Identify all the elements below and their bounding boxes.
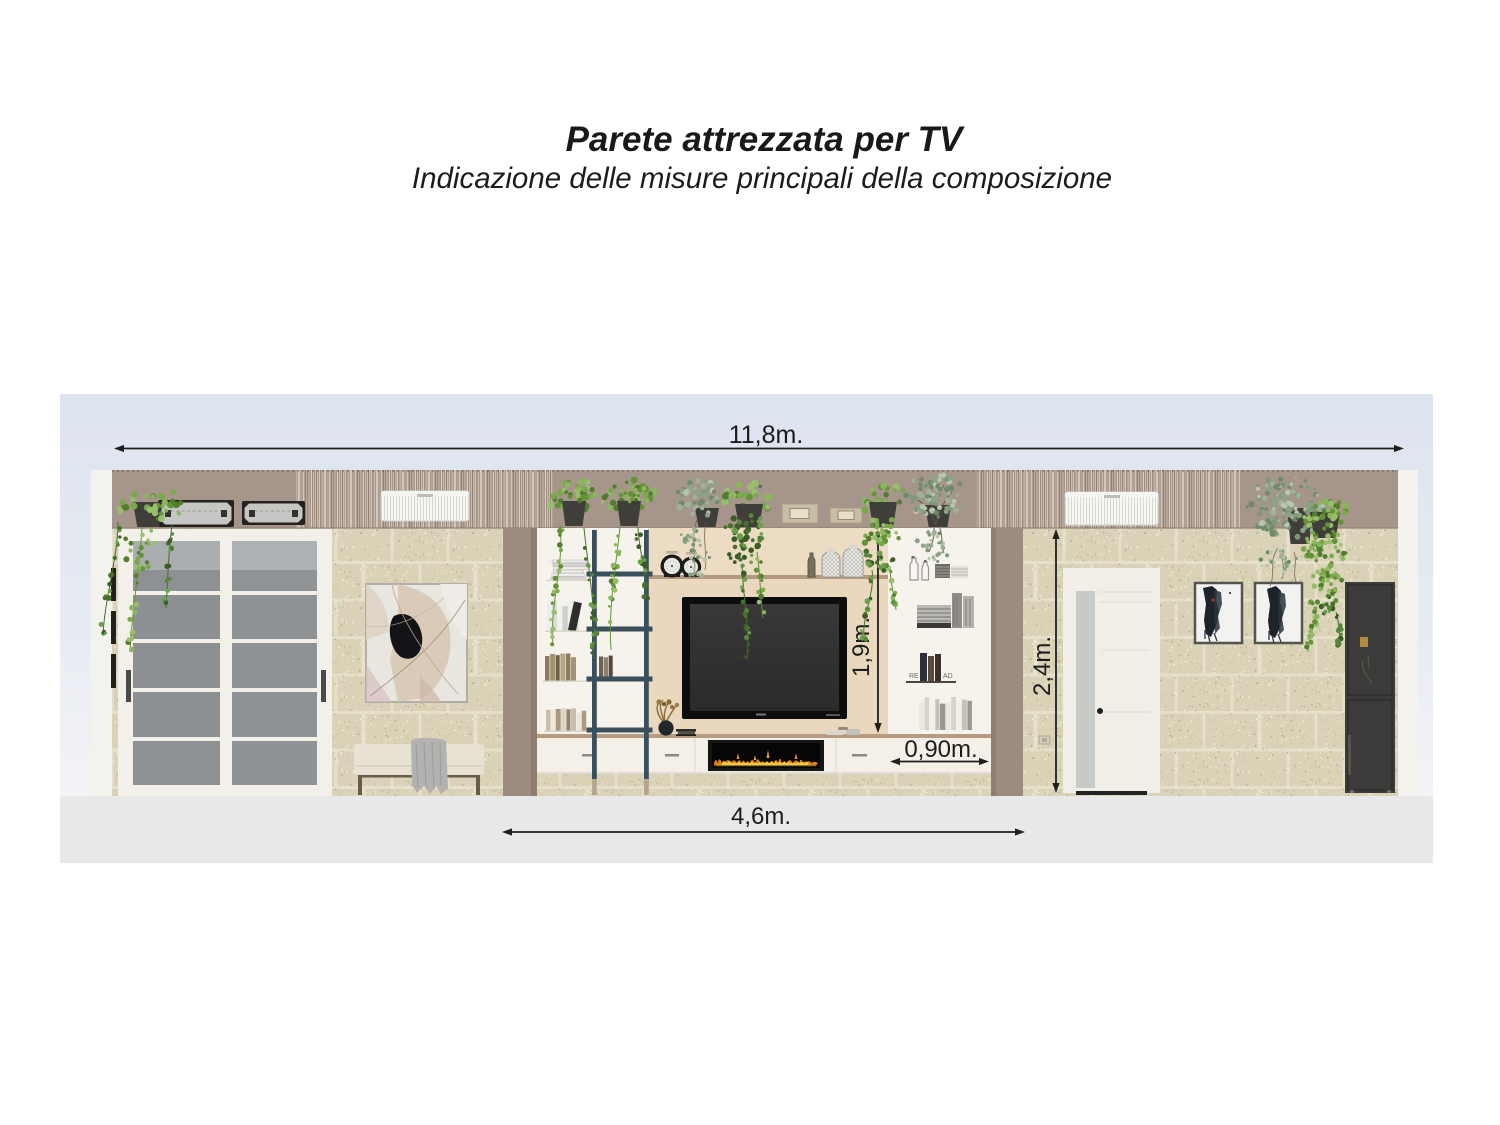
svg-text:AD: AD xyxy=(943,673,953,680)
svg-text:Parete attrezzata per TV: Parete attrezzata per TV xyxy=(566,120,965,159)
svg-text:Indicazione delle misure princ: Indicazione delle misure principali dell… xyxy=(412,162,1112,195)
svg-text:4,6m.: 4,6m. xyxy=(731,803,791,830)
svg-text:1,9m.: 1,9m. xyxy=(848,617,875,677)
svg-text:11,8m.: 11,8m. xyxy=(729,421,804,449)
svg-text:2,4m.: 2,4m. xyxy=(1029,636,1056,696)
svg-text:0,90m.: 0,90m. xyxy=(904,736,977,763)
svg-text:RE: RE xyxy=(909,673,919,680)
